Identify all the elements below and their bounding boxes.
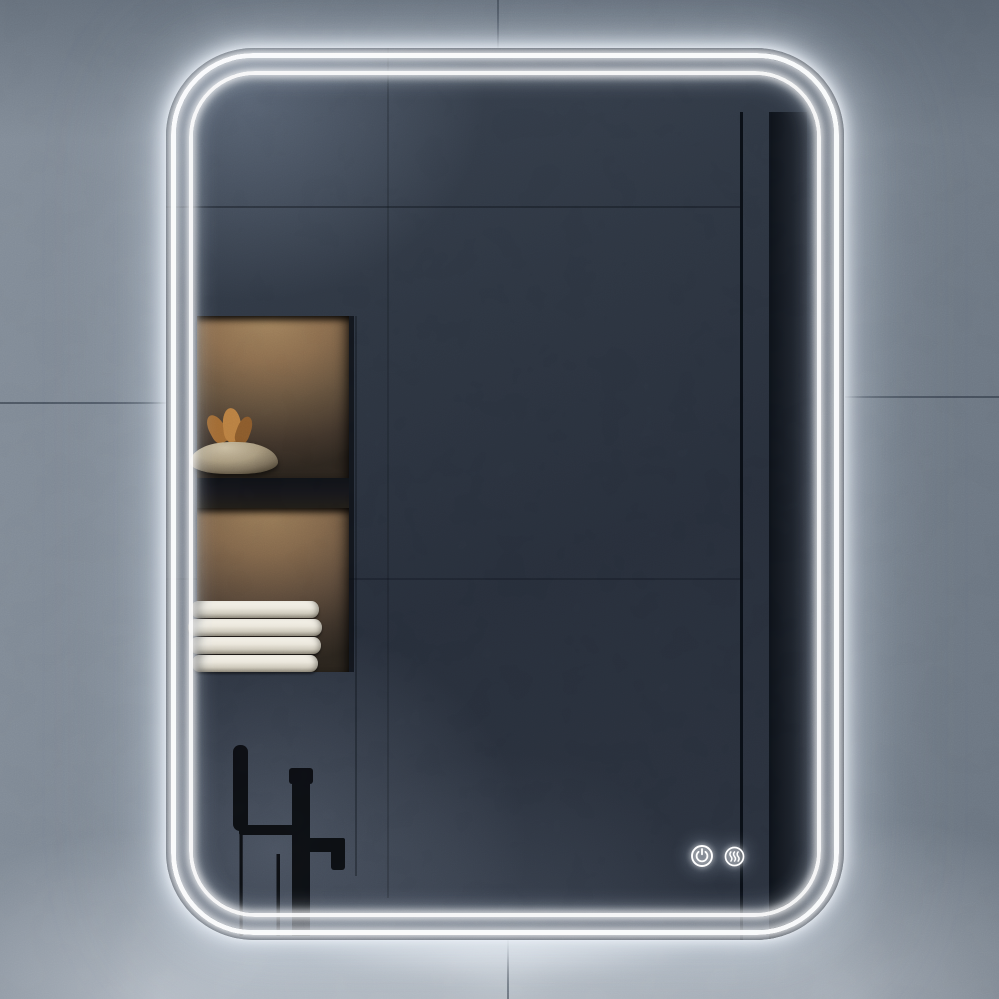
reflected-seam bbox=[387, 48, 389, 898]
towel bbox=[191, 601, 319, 618]
towel bbox=[192, 655, 318, 672]
reflected-shelf-lower bbox=[197, 508, 349, 672]
led-mirror bbox=[166, 48, 844, 940]
wall-seam-left bbox=[0, 402, 166, 404]
shelf-divider bbox=[197, 478, 349, 508]
towel bbox=[188, 619, 322, 636]
bathroom-scene bbox=[0, 0, 999, 999]
reflected-window-reveal bbox=[771, 112, 807, 940]
wall-seam-right bbox=[845, 396, 999, 398]
towel bbox=[190, 637, 321, 654]
wall-seam-top bbox=[497, 0, 499, 50]
black-faucet bbox=[221, 738, 361, 938]
defogger-icon bbox=[721, 843, 748, 870]
mirror-reflection bbox=[166, 48, 844, 940]
shelf-side-edge bbox=[349, 316, 354, 672]
power-icon bbox=[687, 841, 717, 871]
reflected-seam bbox=[166, 206, 740, 208]
reflected-window-forest bbox=[740, 112, 771, 940]
folded-towels bbox=[188, 601, 328, 673]
decorative-bowl bbox=[190, 442, 278, 474]
reflected-shelf-upper bbox=[197, 316, 349, 478]
touch-controls bbox=[687, 841, 749, 871]
